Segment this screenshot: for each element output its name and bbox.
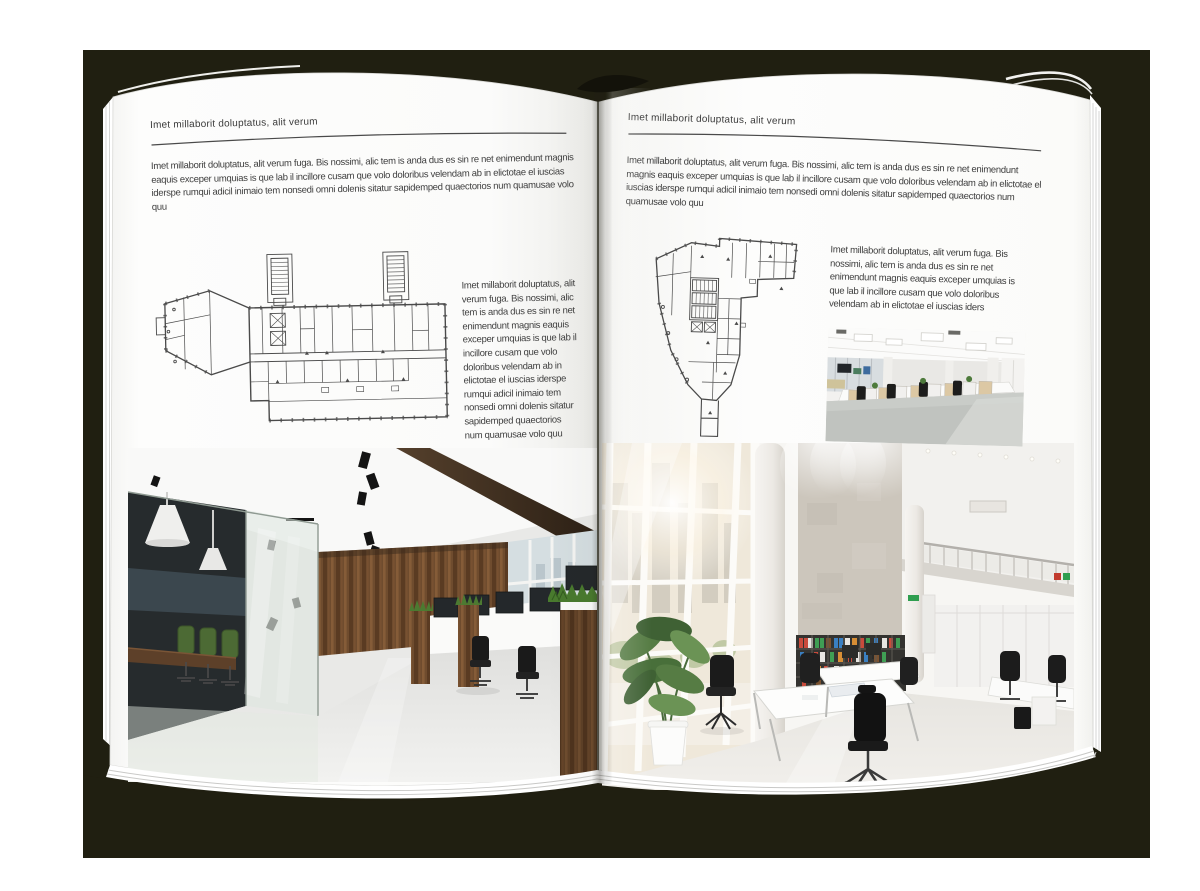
right-page: Imet millaborit doluptatus, alit verum I… xyxy=(619,112,1047,453)
loft-office-photo xyxy=(128,448,597,782)
left-plan-row: Imet millaborit doluptatus, alit verum f… xyxy=(153,243,585,449)
magazine-spread-mockup: Imet millaborit doluptatus, alit verum I… xyxy=(0,0,1200,891)
right-page-column: Imet millaborit doluptatus, alit verum f… xyxy=(825,235,1030,446)
right-plan-row: Imet millaborit doluptatus, alit verum f… xyxy=(619,230,1044,453)
right-page-intro: Imet millaborit doluptatus, alit verum f… xyxy=(625,154,1046,219)
left-page-side-text: Imet millaborit doluptatus, alit verum f… xyxy=(461,277,580,443)
right-floor-plan-drawing xyxy=(641,231,814,447)
right-page-side-text: Imet millaborit doluptatus, alit verum f… xyxy=(829,243,1031,316)
atrium-office-photo xyxy=(602,443,1074,790)
left-page: Imet millaborit doluptatus, alit verum I… xyxy=(150,111,585,449)
left-page-intro: Imet millaborit doluptatus, alit verum f… xyxy=(151,151,580,214)
left-header-rule xyxy=(150,127,568,148)
left-floor-plan-drawing xyxy=(153,246,453,438)
small-office-photo xyxy=(825,327,1025,446)
